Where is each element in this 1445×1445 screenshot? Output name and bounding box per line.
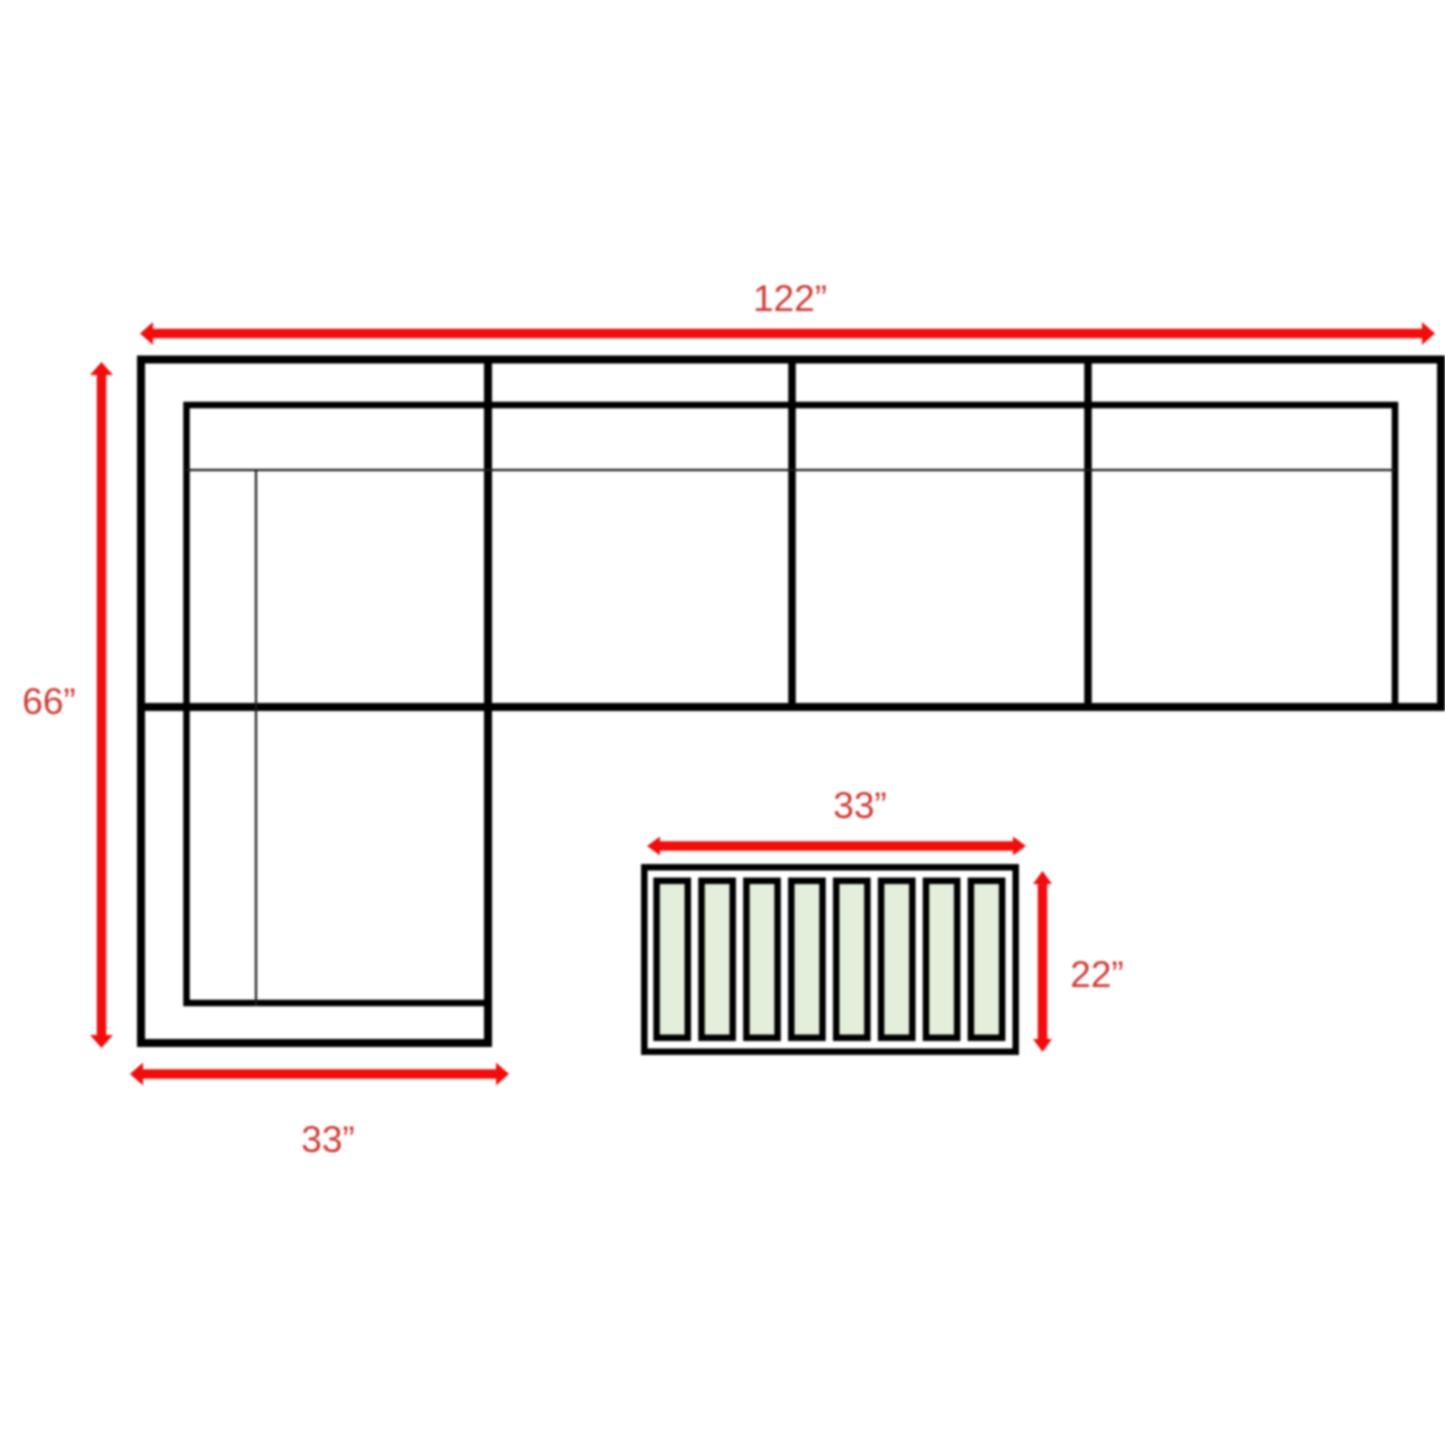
svg-text:33”: 33” (301, 1119, 354, 1160)
svg-text:22”: 22” (1070, 954, 1123, 995)
svg-text:66”: 66” (22, 681, 75, 722)
svg-text:33”: 33” (833, 785, 886, 826)
svg-text:122”: 122” (753, 278, 827, 319)
